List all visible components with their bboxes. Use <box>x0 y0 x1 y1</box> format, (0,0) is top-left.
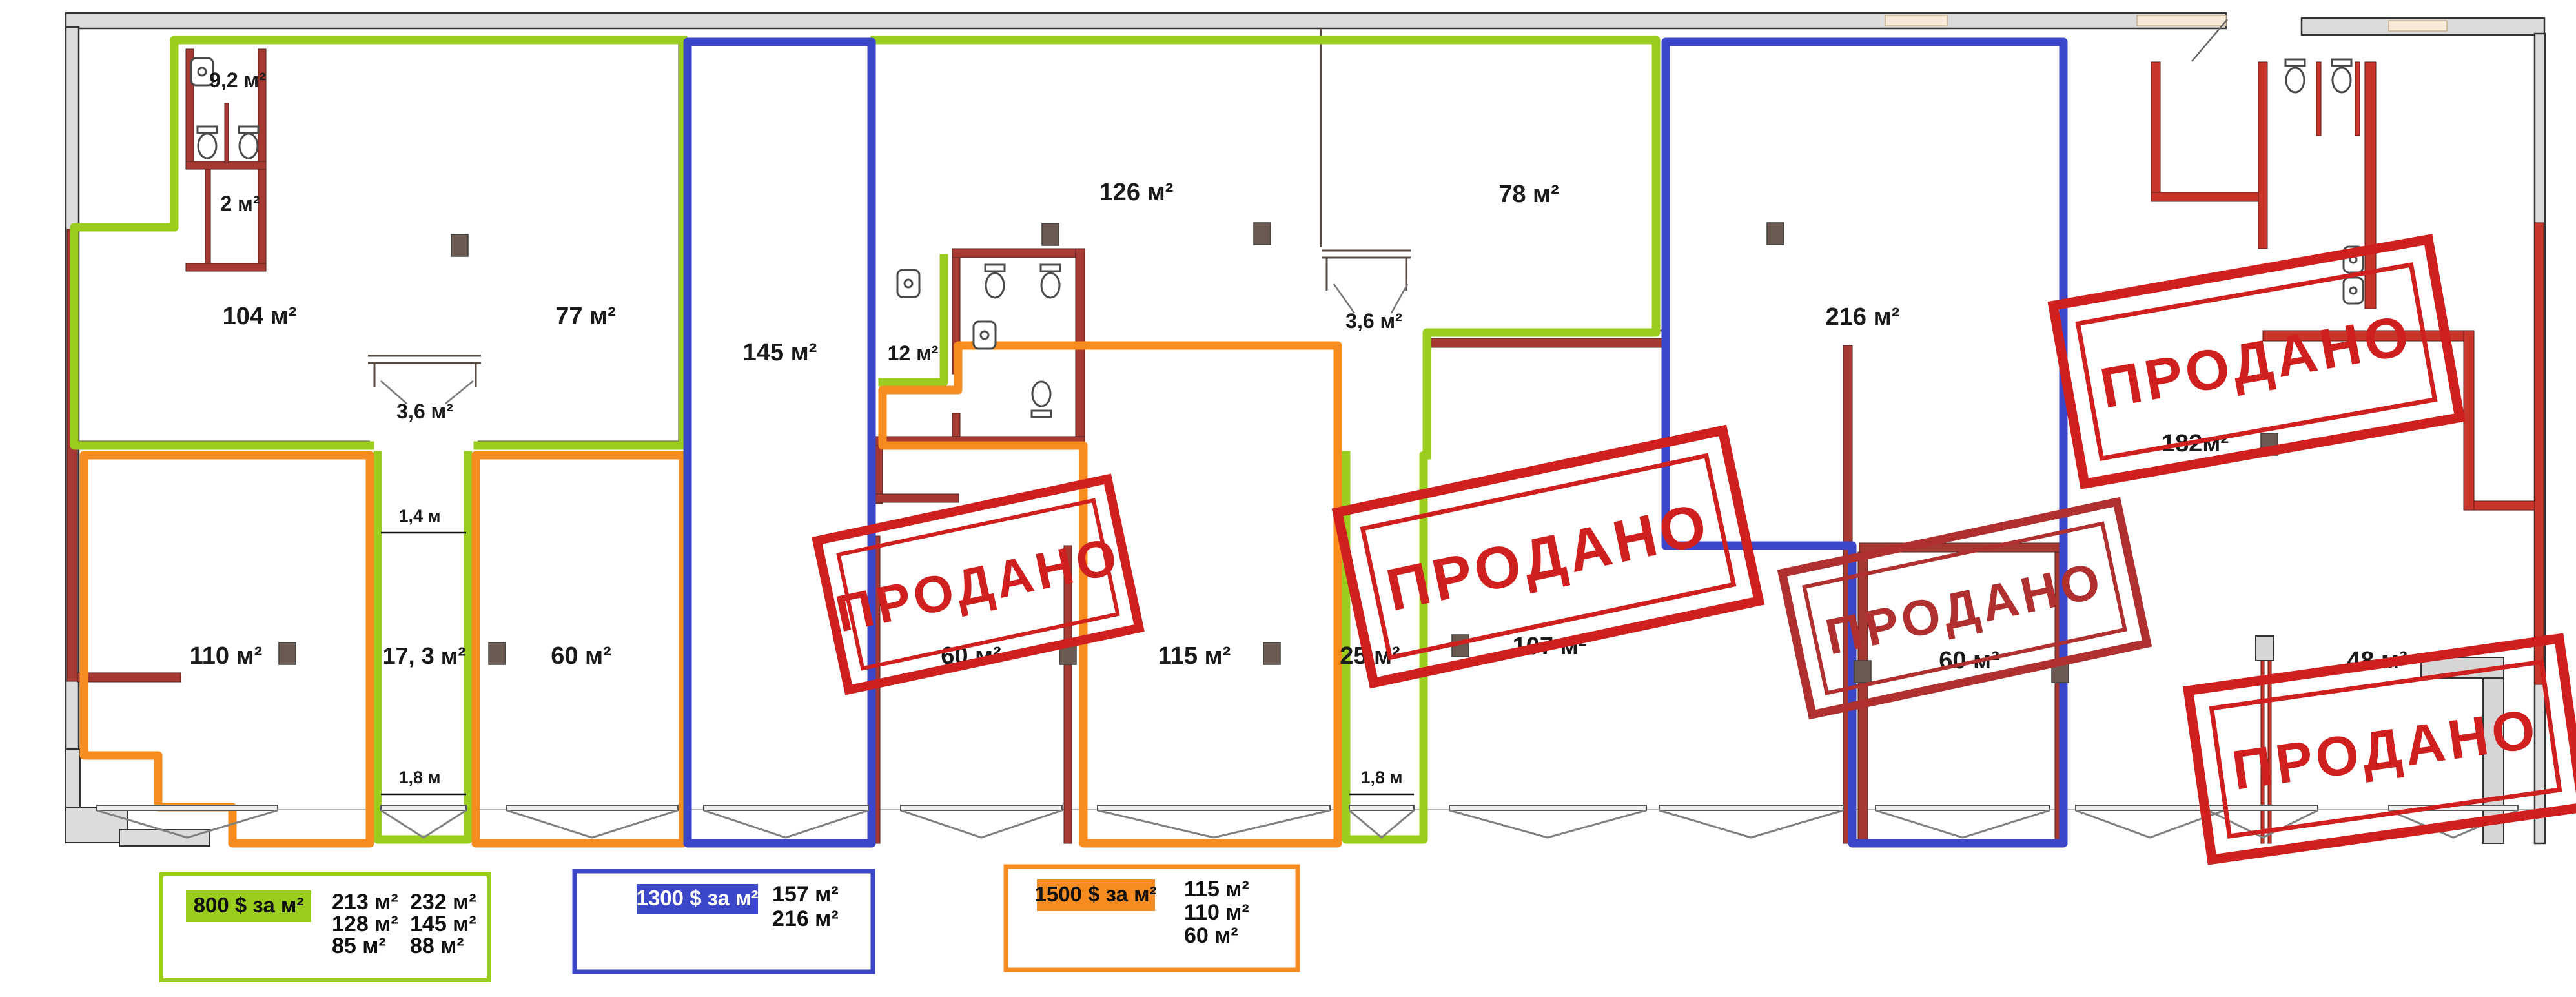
sold-stamp-107: ПРОДАНО <box>1338 431 1759 683</box>
sink-icon <box>897 270 919 297</box>
entrance <box>901 805 1062 838</box>
toilet-icon <box>2285 59 2305 92</box>
sold-stamp-182: ПРОДАНО <box>2053 240 2460 484</box>
entrance <box>1876 805 2050 838</box>
svg-text:145 м²: 145 м² <box>410 912 476 936</box>
svg-text:60 м²: 60 м² <box>1184 923 1238 948</box>
legend: 800 $ за м² 213 м² 128 м² 85 м² 232 м² 1… <box>161 867 1298 980</box>
room-label-12: 12 м² <box>888 342 939 365</box>
svg-text:85 м²: 85 м² <box>332 934 386 958</box>
svg-text:232 м²: 232 м² <box>410 890 476 914</box>
svg-text:ПРОДАНО: ПРОДАНО <box>1381 491 1716 624</box>
toilet-icon <box>985 265 1005 298</box>
bottom-left-step-wall <box>66 749 210 846</box>
legend-blue-price: 1300 $ за м² <box>637 886 759 910</box>
room-label-77: 77 м² <box>555 303 616 330</box>
toilet-icon <box>1041 265 1060 298</box>
room-label-145: 145 м² <box>743 339 817 366</box>
room-label-78: 78 м² <box>1498 181 1559 208</box>
toilet-icons <box>198 59 2351 417</box>
svg-text:1,4 м: 1,4 м <box>398 506 440 526</box>
entrance <box>1659 805 1843 838</box>
svg-text:ПРОДАНО: ПРОДАНО <box>2096 302 2417 420</box>
room-label-9-2: 9,2 м² <box>209 68 266 92</box>
svg-text:88 м²: 88 м² <box>410 934 464 958</box>
entrance <box>1349 805 1414 838</box>
floor-plan: 1,4 м 1,8 м 1,8 м 9,2 м² 2 м² 104 м² 77 … <box>0 0 2576 997</box>
toilet-icon <box>198 127 217 158</box>
svg-text:1,8 м: 1,8 м <box>1360 768 1402 787</box>
entrance <box>381 805 466 838</box>
svg-text:115 м²: 115 м² <box>1184 877 1249 901</box>
room-label-115: 115 м² <box>1158 642 1231 670</box>
svg-text:213 м²: 213 м² <box>332 890 398 914</box>
outer-walls <box>66 13 2545 846</box>
room-label-126: 126 м² <box>1099 179 1174 206</box>
room-label-104: 104 м² <box>223 303 297 330</box>
unit-outline-orange <box>84 345 1338 843</box>
room-label-216: 216 м² <box>1826 303 1900 331</box>
entrances <box>97 805 2518 838</box>
room-label-2: 2 м² <box>220 192 260 215</box>
unit-outline-green <box>74 40 1656 839</box>
legend-green-price: 800 $ за м² <box>194 893 304 917</box>
toilet-icon <box>2332 59 2351 92</box>
legend-orange: 1500 $ за м² 115 м² 110 м² 60 м² <box>1006 867 1298 970</box>
sold-stamp-60-right: ПРОДАНО <box>1783 502 2147 714</box>
entrance <box>1098 805 1330 838</box>
sink-icons <box>191 58 2363 349</box>
room-label-3-6-left: 3,6 м² <box>396 400 453 423</box>
room-label-110: 110 м² <box>190 642 263 670</box>
dimension-1-8-left: 1,8 м <box>381 768 466 794</box>
legend-green: 800 $ за м² 213 м² 128 м² 85 м² 232 м² 1… <box>161 874 489 980</box>
legend-orange-price: 1500 $ за м² <box>1035 882 1157 906</box>
entrance <box>704 805 868 838</box>
toilet-icon <box>1032 382 1051 417</box>
toilet-icon <box>239 127 258 158</box>
room-label-60-left: 60 м² <box>551 642 611 670</box>
svg-text:1,8 м: 1,8 м <box>398 768 440 787</box>
dimension-1-8-right: 1,8 м <box>1349 768 1414 794</box>
entrance <box>1449 805 1646 838</box>
svg-text:110 м²: 110 м² <box>1184 900 1249 925</box>
room-label-60-right: 60 м² <box>1939 647 1999 674</box>
svg-text:128 м²: 128 м² <box>332 912 398 936</box>
dimension-1-4: 1,4 м <box>381 506 466 533</box>
svg-text:157 м²: 157 м² <box>772 882 839 907</box>
sink-icon <box>2344 278 2363 303</box>
entrance <box>507 805 678 838</box>
legend-blue: 1300 $ за м² 157 м² 216 м² <box>575 871 873 972</box>
sink-icon <box>974 322 996 349</box>
sold-stamp-60-mid: ПРОДАНО <box>817 479 1139 690</box>
room-label-17-3: 17, 3 м² <box>383 642 466 669</box>
svg-text:216 м²: 216 м² <box>772 907 839 931</box>
